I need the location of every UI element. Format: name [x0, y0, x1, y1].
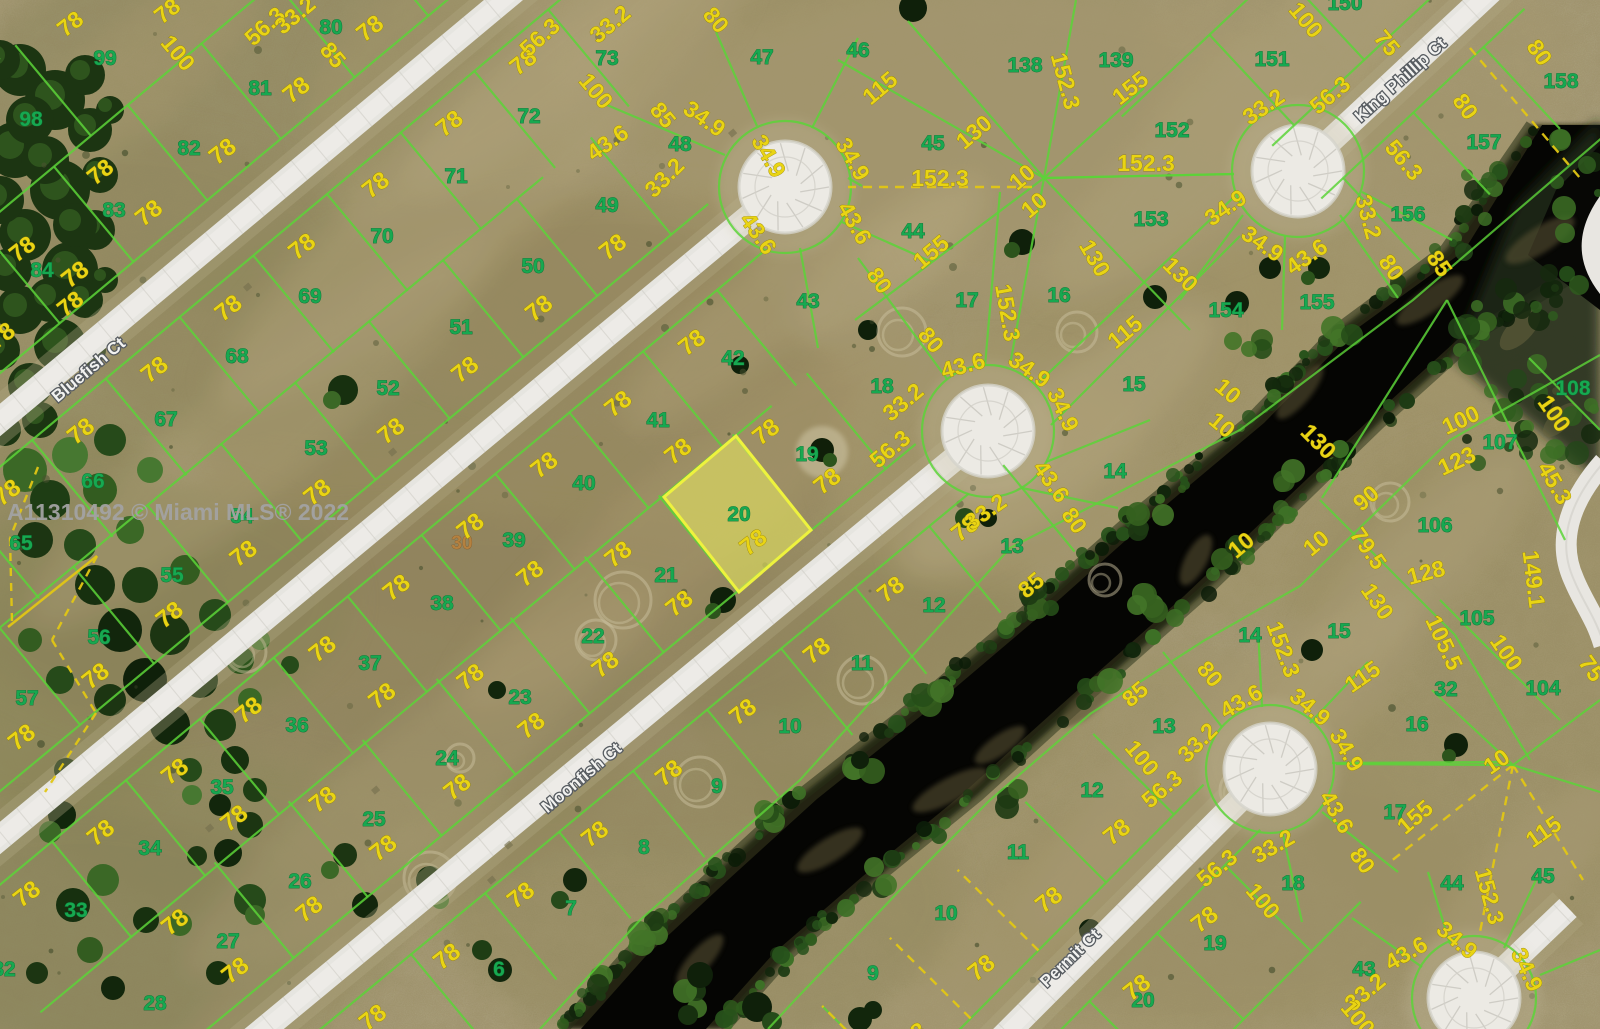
svg-text:13: 13 — [1152, 715, 1175, 738]
svg-text:154: 154 — [1208, 299, 1243, 322]
svg-text:9: 9 — [711, 775, 723, 798]
svg-text:32: 32 — [1434, 678, 1457, 701]
svg-text:41: 41 — [646, 409, 670, 432]
svg-text:52: 52 — [376, 377, 399, 400]
svg-text:19: 19 — [1203, 932, 1226, 955]
svg-text:15: 15 — [1122, 373, 1146, 396]
svg-text:26: 26 — [288, 870, 311, 893]
svg-text:15: 15 — [1327, 620, 1351, 643]
svg-text:37: 37 — [358, 652, 381, 675]
svg-text:48: 48 — [668, 133, 692, 156]
svg-text:152.3: 152.3 — [1117, 150, 1175, 176]
svg-text:12: 12 — [922, 594, 945, 617]
svg-text:45: 45 — [1531, 865, 1555, 888]
svg-text:73: 73 — [595, 47, 618, 70]
svg-text:65: 65 — [9, 532, 33, 555]
svg-text:153: 153 — [1133, 208, 1168, 231]
svg-text:139: 139 — [1098, 49, 1133, 72]
svg-text:32: 32 — [0, 958, 16, 981]
svg-text:28: 28 — [143, 992, 167, 1015]
svg-text:17: 17 — [955, 289, 978, 312]
svg-text:39: 39 — [502, 529, 525, 552]
svg-text:46: 46 — [846, 39, 869, 62]
svg-text:66: 66 — [81, 470, 104, 493]
svg-text:82: 82 — [177, 137, 200, 160]
svg-text:35: 35 — [210, 776, 234, 799]
svg-text:18: 18 — [1281, 872, 1305, 895]
svg-text:152.3: 152.3 — [911, 165, 969, 191]
svg-text:81: 81 — [248, 77, 272, 100]
svg-text:16: 16 — [1405, 713, 1428, 736]
svg-text:157: 157 — [1466, 131, 1501, 154]
svg-text:84: 84 — [30, 259, 54, 282]
svg-text:25: 25 — [362, 808, 386, 831]
svg-text:22: 22 — [581, 625, 604, 648]
svg-text:72: 72 — [517, 105, 540, 128]
svg-text:9: 9 — [867, 962, 879, 985]
svg-text:151: 151 — [1254, 48, 1289, 71]
svg-text:13: 13 — [1000, 535, 1023, 558]
svg-text:70: 70 — [370, 225, 393, 248]
svg-text:44: 44 — [901, 220, 925, 243]
svg-text:11: 11 — [1007, 841, 1030, 864]
svg-text:36: 36 — [285, 714, 308, 737]
svg-text:80: 80 — [319, 16, 342, 39]
svg-text:10: 10 — [934, 902, 957, 925]
svg-text:45: 45 — [921, 132, 945, 155]
svg-text:55: 55 — [160, 564, 184, 587]
svg-text:50: 50 — [521, 255, 544, 278]
svg-text:11: 11 — [851, 652, 874, 675]
svg-text:20: 20 — [727, 503, 750, 526]
svg-text:16: 16 — [1047, 284, 1070, 307]
svg-text:21: 21 — [654, 564, 678, 587]
svg-text:14: 14 — [1103, 460, 1127, 483]
svg-text:150: 150 — [1327, 0, 1362, 15]
svg-text:69: 69 — [298, 285, 321, 308]
svg-text:51: 51 — [449, 316, 473, 339]
svg-text:155: 155 — [1299, 291, 1334, 314]
svg-text:10: 10 — [778, 715, 801, 738]
svg-text:98: 98 — [19, 108, 43, 131]
svg-text:8: 8 — [638, 836, 650, 859]
svg-text:24: 24 — [435, 747, 459, 770]
svg-text:14: 14 — [1238, 624, 1262, 647]
svg-text:152: 152 — [1154, 119, 1189, 142]
svg-text:47: 47 — [750, 46, 773, 69]
svg-text:43: 43 — [796, 290, 819, 313]
svg-text:7: 7 — [565, 897, 577, 920]
svg-text:23: 23 — [508, 686, 531, 709]
svg-text:40: 40 — [572, 472, 595, 495]
svg-text:12: 12 — [1080, 779, 1103, 802]
svg-text:44: 44 — [1440, 872, 1464, 895]
svg-text:99: 99 — [93, 47, 116, 70]
svg-text:107: 107 — [1482, 431, 1517, 454]
svg-text:27: 27 — [216, 930, 239, 953]
svg-text:106: 106 — [1417, 514, 1452, 537]
svg-text:38: 38 — [430, 592, 454, 615]
svg-text:71: 71 — [444, 165, 468, 188]
svg-text:108: 108 — [1555, 377, 1590, 400]
svg-text:33: 33 — [64, 899, 87, 922]
svg-text:68: 68 — [225, 345, 249, 368]
svg-text:53: 53 — [304, 437, 327, 460]
svg-text:83: 83 — [102, 199, 125, 222]
svg-text:19: 19 — [795, 443, 818, 466]
svg-text:56: 56 — [87, 626, 110, 649]
svg-text:67: 67 — [154, 408, 177, 431]
svg-text:57: 57 — [15, 687, 38, 710]
svg-text:138: 138 — [1007, 54, 1042, 77]
svg-text:42: 42 — [721, 347, 744, 370]
svg-text:A11310492 © Miami MLS® 2022: A11310492 © Miami MLS® 2022 — [7, 499, 349, 525]
svg-text:49: 49 — [595, 194, 618, 217]
svg-text:104: 104 — [1525, 677, 1560, 700]
svg-text:156: 156 — [1390, 203, 1425, 226]
svg-text:105: 105 — [1459, 607, 1494, 630]
svg-text:158: 158 — [1543, 70, 1578, 93]
svg-text:34: 34 — [138, 837, 162, 860]
svg-text:6: 6 — [493, 958, 505, 981]
